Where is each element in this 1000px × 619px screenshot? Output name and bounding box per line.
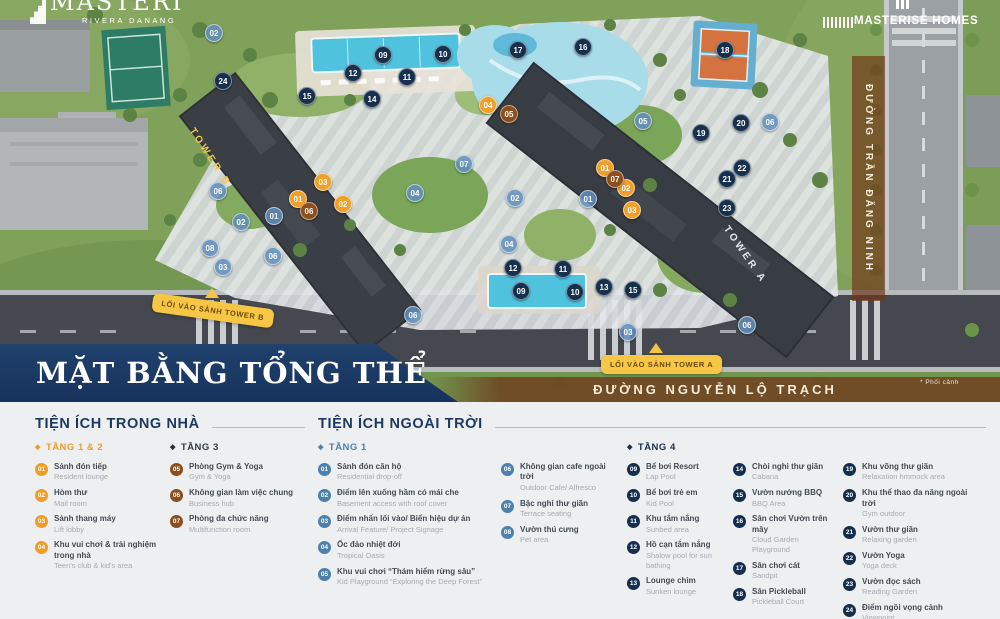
- legend-badge: 03: [318, 515, 331, 528]
- map-marker-03: 03: [314, 173, 332, 191]
- map-marker-04: 04: [406, 184, 424, 202]
- map-marker-16: 16: [574, 38, 592, 56]
- map-marker-12: 12: [504, 259, 522, 277]
- map-marker-10: 10: [434, 45, 452, 63]
- masterise-mark-icon: [896, 0, 909, 9]
- legend-item-text: Sảnh thang máyLift lobby: [54, 514, 116, 534]
- map-marker-22: 22: [733, 159, 751, 177]
- legend-badge: 19: [843, 463, 856, 476]
- legend-badge: 03: [35, 515, 48, 528]
- map-marker-11: 11: [398, 68, 416, 86]
- legend-item-01: 01Sảnh đón căn hộResidential drop-off: [318, 462, 493, 482]
- legend-item-text: Điểm nhấn lối vào/ Biển hiệu dự ánArriva…: [337, 514, 470, 534]
- entry-b-arrow-icon: [205, 288, 219, 298]
- legend-item-18: 18Sân PickleballPickleball Court: [733, 587, 835, 607]
- legend-badge: 11: [627, 515, 640, 528]
- diamond-icon: ◆: [627, 444, 633, 451]
- map-marker-06: 06: [761, 113, 779, 131]
- render-note: * Phối cảnh: [920, 379, 959, 386]
- legend-item-text: Khu tắm nắngSunbed area: [646, 514, 699, 534]
- legend-item-17: 17Sân chơi cátSandpit: [733, 561, 835, 581]
- legend-item-11: 11Khu tắm nắngSunbed area: [627, 514, 725, 534]
- legend-item-text: Vườn thư giãnRelaxing garden: [862, 525, 918, 545]
- legend: TIỆN ÍCH TRONG NHÀ ◆TẦNG 1 & 201Sảnh đón…: [0, 402, 1000, 619]
- map-marker-12: 12: [344, 64, 362, 82]
- map-marker-11: 11: [554, 260, 572, 278]
- diamond-icon: ◆: [35, 444, 41, 451]
- legend-item-06: 06Không gian cafe ngoài trờiOutdoor Cafe…: [501, 462, 619, 493]
- map-marker-15: 15: [298, 87, 316, 105]
- legend-badge: 14: [733, 463, 746, 476]
- legend-badge: 04: [318, 541, 331, 554]
- legend-item-text: Phòng Gym & YogaGym & Yoga: [189, 462, 263, 482]
- legend-item-07: 07Bậc nghỉ thư giãnTerrace seating: [501, 499, 619, 519]
- legend-item-text: Điểm lên xuống hầm có mái cheBasement ac…: [337, 488, 459, 508]
- road-right-label: ĐƯỜNG TRẦN ĐĂNG NINH: [863, 84, 874, 273]
- legend-badge: 05: [170, 463, 183, 476]
- legend-item-text: Khu võng thư giãnRelaxation hmmock area: [862, 462, 945, 482]
- map-marker-15: 15: [624, 281, 642, 299]
- legend-badge: 06: [501, 463, 514, 476]
- legend-item-10: 10Bể bơi trẻ emKid Pool: [627, 488, 725, 508]
- legend-badge: 06: [170, 489, 183, 502]
- legend-item-text: Vườn nướng BBQBBQ Area: [752, 488, 822, 508]
- legend-badge: 15: [733, 489, 746, 502]
- legend-columns-outdoor: ◆TẦNG 101Sảnh đón căn hộResidential drop…: [318, 442, 986, 619]
- legend-item-13: 13Lounge chìmSunken lounge: [627, 576, 725, 596]
- legend-badge: 01: [318, 463, 331, 476]
- legend-item-15: 15Vườn nướng BBQBBQ Area: [733, 488, 835, 508]
- legend-item-05: 05Phòng Gym & YogaGym & Yoga: [170, 462, 297, 482]
- legend-item-text: Phòng đa chức năngMultifunction room: [189, 514, 269, 534]
- legend-columns-indoor: ◆TẦNG 1 & 201Sảnh đón tiếpResident loung…: [35, 442, 305, 577]
- map-marker-08: 08: [201, 239, 219, 257]
- masterplan-page: 0910121124151417161820192221231211091013…: [0, 0, 1000, 619]
- legend-badge: 20: [843, 489, 856, 502]
- legend-badge: 10: [627, 489, 640, 502]
- entry-a-arrow-icon: [649, 343, 663, 353]
- legend-item-24: 24Điểm ngồi vọng cảnhViewpoint: [843, 603, 978, 619]
- legend-badge: 08: [501, 526, 514, 539]
- legend-item-text: Khu vui chơi & trải nghiệm trong nhàTeen…: [54, 540, 162, 571]
- legend-column: 06Không gian cafe ngoài trờiOutdoor Cafe…: [501, 442, 627, 619]
- legend-item-text: Không gian làm việc chungBusiness hub: [189, 488, 293, 508]
- map-marker-06: 06: [264, 247, 282, 265]
- map-marker-09: 09: [512, 282, 530, 300]
- map-marker-20: 20: [732, 114, 750, 132]
- legend-item-text: Vườn đọc sáchReading Garden: [862, 577, 921, 597]
- map-marker-03: 03: [214, 258, 232, 276]
- entry-tower-a-badge: LỐI VÀO SẢNH TOWER A: [601, 355, 722, 374]
- legend-item-19: 19Khu võng thư giãnRelaxation hmmock are…: [843, 462, 978, 482]
- map-marker-14: 14: [363, 90, 381, 108]
- legend-item-text: Sân chơi cátSandpit: [752, 561, 800, 581]
- legend-item-22: 22Vườn YogaYoga deck: [843, 551, 978, 571]
- map-marker-02: 02: [334, 195, 352, 213]
- legend-item-text: Sân chơi Vườn trên mâyCloud Garden Playg…: [752, 514, 835, 554]
- legend-item-text: Bậc nghỉ thư giãnTerrace seating: [520, 499, 588, 519]
- legend-group-label: ◆TẦNG 1 & 2: [35, 442, 162, 454]
- road-tran-dang-ninh: ĐƯỜNG TRẦN ĐĂNG NINH: [852, 56, 885, 301]
- legend-item-text: Khu vui chơi “Thám hiểm rừng sâu”Kid Pla…: [337, 567, 482, 587]
- map-marker-03: 03: [623, 201, 641, 219]
- map-marker-02: 02: [232, 213, 250, 231]
- map-marker-03: 03: [619, 323, 637, 341]
- legend-badge: 18: [733, 588, 746, 601]
- legend-badge: 12: [627, 541, 640, 554]
- map-marker-04: 04: [479, 96, 497, 114]
- legend-item-01: 01Sảnh đón tiếpResident lounge: [35, 462, 162, 482]
- legend-item-12: 12Hồ cạn tắm nắngShalow pool for sun bat…: [627, 540, 725, 570]
- masterise-wordmark: MASTERISE HOMES: [854, 15, 978, 27]
- legend-item-text: Chòi nghỉ thư giãnCabana: [752, 462, 823, 482]
- legend-item-text: Khu thể thao đa năng ngoài trờiGym outdo…: [862, 488, 978, 519]
- legend-item-text: Bể bơi ResortLap Pool: [646, 462, 699, 482]
- legend-column: 19Khu võng thư giãnRelaxation hmmock are…: [843, 442, 986, 619]
- legend-badge: 23: [843, 578, 856, 591]
- diamond-icon: ◆: [170, 444, 176, 451]
- legend-badge: 13: [627, 577, 640, 590]
- legend-badge: 04: [35, 541, 48, 554]
- legend-section-indoor: TIỆN ÍCH TRONG NHÀ ◆TẦNG 1 & 201Sảnh đón…: [35, 416, 305, 577]
- legend-badge: 17: [733, 562, 746, 575]
- legend-item-text: Sảnh đón tiếpResident lounge: [54, 462, 108, 482]
- legend-item-text: Sân PickleballPickleball Court: [752, 587, 806, 607]
- map-marker-24: 24: [214, 72, 232, 90]
- legend-title-indoor: TIỆN ÍCH TRONG NHÀ: [35, 416, 200, 432]
- map-marker-07: 07: [606, 170, 624, 188]
- legend-item-02: 02Hòm thưMail room: [35, 488, 162, 508]
- legend-badge: 24: [843, 604, 856, 617]
- legend-item-text: Ốc đảo nhiệt đớiTropical Oasis: [337, 540, 400, 560]
- legend-badge: 05: [318, 568, 331, 581]
- legend-badge: 22: [843, 552, 856, 565]
- map-marker-13: 13: [595, 278, 613, 296]
- legend-item-text: Hòm thưMail room: [54, 488, 87, 508]
- masteri-subtitle: RIVERA DANANG: [82, 16, 176, 25]
- legend-column: ◆TẦNG 409Bể bơi ResortLap Pool10Bể bơi t…: [627, 442, 733, 619]
- road-nguyen-lo-trach: ĐƯỜNG NGUYỄN LỘ TRẠCH: [430, 377, 1000, 402]
- map-marker-02: 02: [205, 24, 223, 42]
- legend-item-03: 03Sảnh thang máyLift lobby: [35, 514, 162, 534]
- legend-item-07: 07Phòng đa chức năngMultifunction room: [170, 514, 297, 534]
- map-marker-04: 04: [500, 235, 518, 253]
- legend-item-text: Điểm ngồi vọng cảnhViewpoint: [862, 603, 943, 619]
- map-marker-19: 19: [692, 124, 710, 142]
- legend-item-08: 08Vườn thú cưngPet area: [501, 525, 619, 545]
- page-title: MẶT BẰNG TỔNG THỂ: [36, 344, 427, 402]
- site-plan-map: 0910121124151417161820192221231211091013…: [0, 0, 1000, 402]
- map-marker-05: 05: [634, 112, 652, 130]
- legend-section-outdoor: TIỆN ÍCH NGOÀI TRỜI ◆TẦNG 101Sảnh đón că…: [318, 416, 986, 619]
- map-marker-06: 06: [300, 202, 318, 220]
- legend-badge: 02: [35, 489, 48, 502]
- legend-column: ◆TẦNG 1 & 201Sảnh đón tiếpResident loung…: [35, 442, 170, 577]
- map-marker-18: 18: [716, 41, 734, 59]
- legend-item-14: 14Chòi nghỉ thư giãnCabana: [733, 462, 835, 482]
- legend-badge: 07: [170, 515, 183, 528]
- map-marker-01: 01: [579, 190, 597, 208]
- legend-column: ◆TẦNG 101Sảnh đón căn hộResidential drop…: [318, 442, 501, 619]
- map-marker-02: 02: [506, 189, 524, 207]
- header-rule: [495, 427, 986, 428]
- map-marker-05: 05: [500, 105, 518, 123]
- legend-item-text: Vườn YogaYoga deck: [862, 551, 905, 571]
- barcode-icon: [823, 17, 853, 28]
- map-marker-17: 17: [509, 41, 527, 59]
- map-marker-09: 09: [374, 46, 392, 64]
- legend-badge: 02: [318, 489, 331, 502]
- legend-title-outdoor: TIỆN ÍCH NGOÀI TRỜI: [318, 416, 483, 432]
- map-marker-01: 01: [265, 207, 283, 225]
- legend-badge: 01: [35, 463, 48, 476]
- legend-badge: 07: [501, 500, 514, 513]
- masteri-wordmark: MASTERI: [50, 0, 183, 16]
- legend-item-03: 03Điểm nhấn lối vào/ Biển hiệu dự ánArri…: [318, 514, 493, 534]
- legend-item-21: 21Vườn thư giãnRelaxing garden: [843, 525, 978, 545]
- legend-group-label: ◆TẦNG 4: [627, 442, 725, 454]
- legend-item-text: Lounge chìmSunken lounge: [646, 576, 696, 596]
- legend-item-06: 06Không gian làm việc chungBusiness hub: [170, 488, 297, 508]
- legend-header-indoor: TIỆN ÍCH TRONG NHÀ: [35, 416, 305, 432]
- diamond-icon: ◆: [318, 444, 324, 451]
- legend-item-text: Không gian cafe ngoài trờiOutdoor Cafe/ …: [520, 462, 619, 493]
- legend-item-04: 04Ốc đảo nhiệt đớiTropical Oasis: [318, 540, 493, 560]
- legend-item-09: 09Bể bơi ResortLap Pool: [627, 462, 725, 482]
- legend-item-text: Hồ cạn tắm nắngShalow pool for sun bathi…: [646, 540, 725, 570]
- legend-column: 14Chòi nghỉ thư giãnCabana15Vườn nướng B…: [733, 442, 843, 619]
- legend-group-label: ◆TẦNG 3: [170, 442, 297, 454]
- legend-item-04: 04Khu vui chơi & trải nghiệm trong nhàTe…: [35, 540, 162, 571]
- map-marker-07: 07: [455, 155, 473, 173]
- legend-item-16: 16Sân chơi Vườn trên mâyCloud Garden Pla…: [733, 514, 835, 554]
- legend-group-label: ◆TẦNG 1: [318, 442, 493, 454]
- header-rule: [212, 427, 305, 428]
- legend-item-23: 23Vườn đọc sáchReading Garden: [843, 577, 978, 597]
- legend-badge: 09: [627, 463, 640, 476]
- legend-badge: 21: [843, 526, 856, 539]
- legend-item-20: 20Khu thể thao đa năng ngoài trờiGym out…: [843, 488, 978, 519]
- map-marker-06: 06: [404, 306, 422, 324]
- map-marker-06: 06: [738, 316, 756, 334]
- legend-badge: 16: [733, 515, 746, 528]
- legend-item-text: Sảnh đón căn hộResidential drop-off: [337, 462, 402, 482]
- legend-item-05: 05Khu vui chơi “Thám hiểm rừng sâu”Kid P…: [318, 567, 493, 587]
- legend-column: ◆TẦNG 305Phòng Gym & YogaGym & Yoga06Khô…: [170, 442, 305, 577]
- legend-item-text: Bể bơi trẻ emKid Pool: [646, 488, 697, 508]
- map-marker-23: 23: [718, 199, 736, 217]
- legend-item-02: 02Điểm lên xuống hầm có mái cheBasement …: [318, 488, 493, 508]
- legend-item-text: Vườn thú cưngPet area: [520, 525, 579, 545]
- map-marker-21: 21: [718, 170, 736, 188]
- aerial-render: [0, 0, 1000, 402]
- legend-header-outdoor: TIỆN ÍCH NGOÀI TRỜI: [318, 416, 986, 432]
- map-marker-10: 10: [566, 283, 584, 301]
